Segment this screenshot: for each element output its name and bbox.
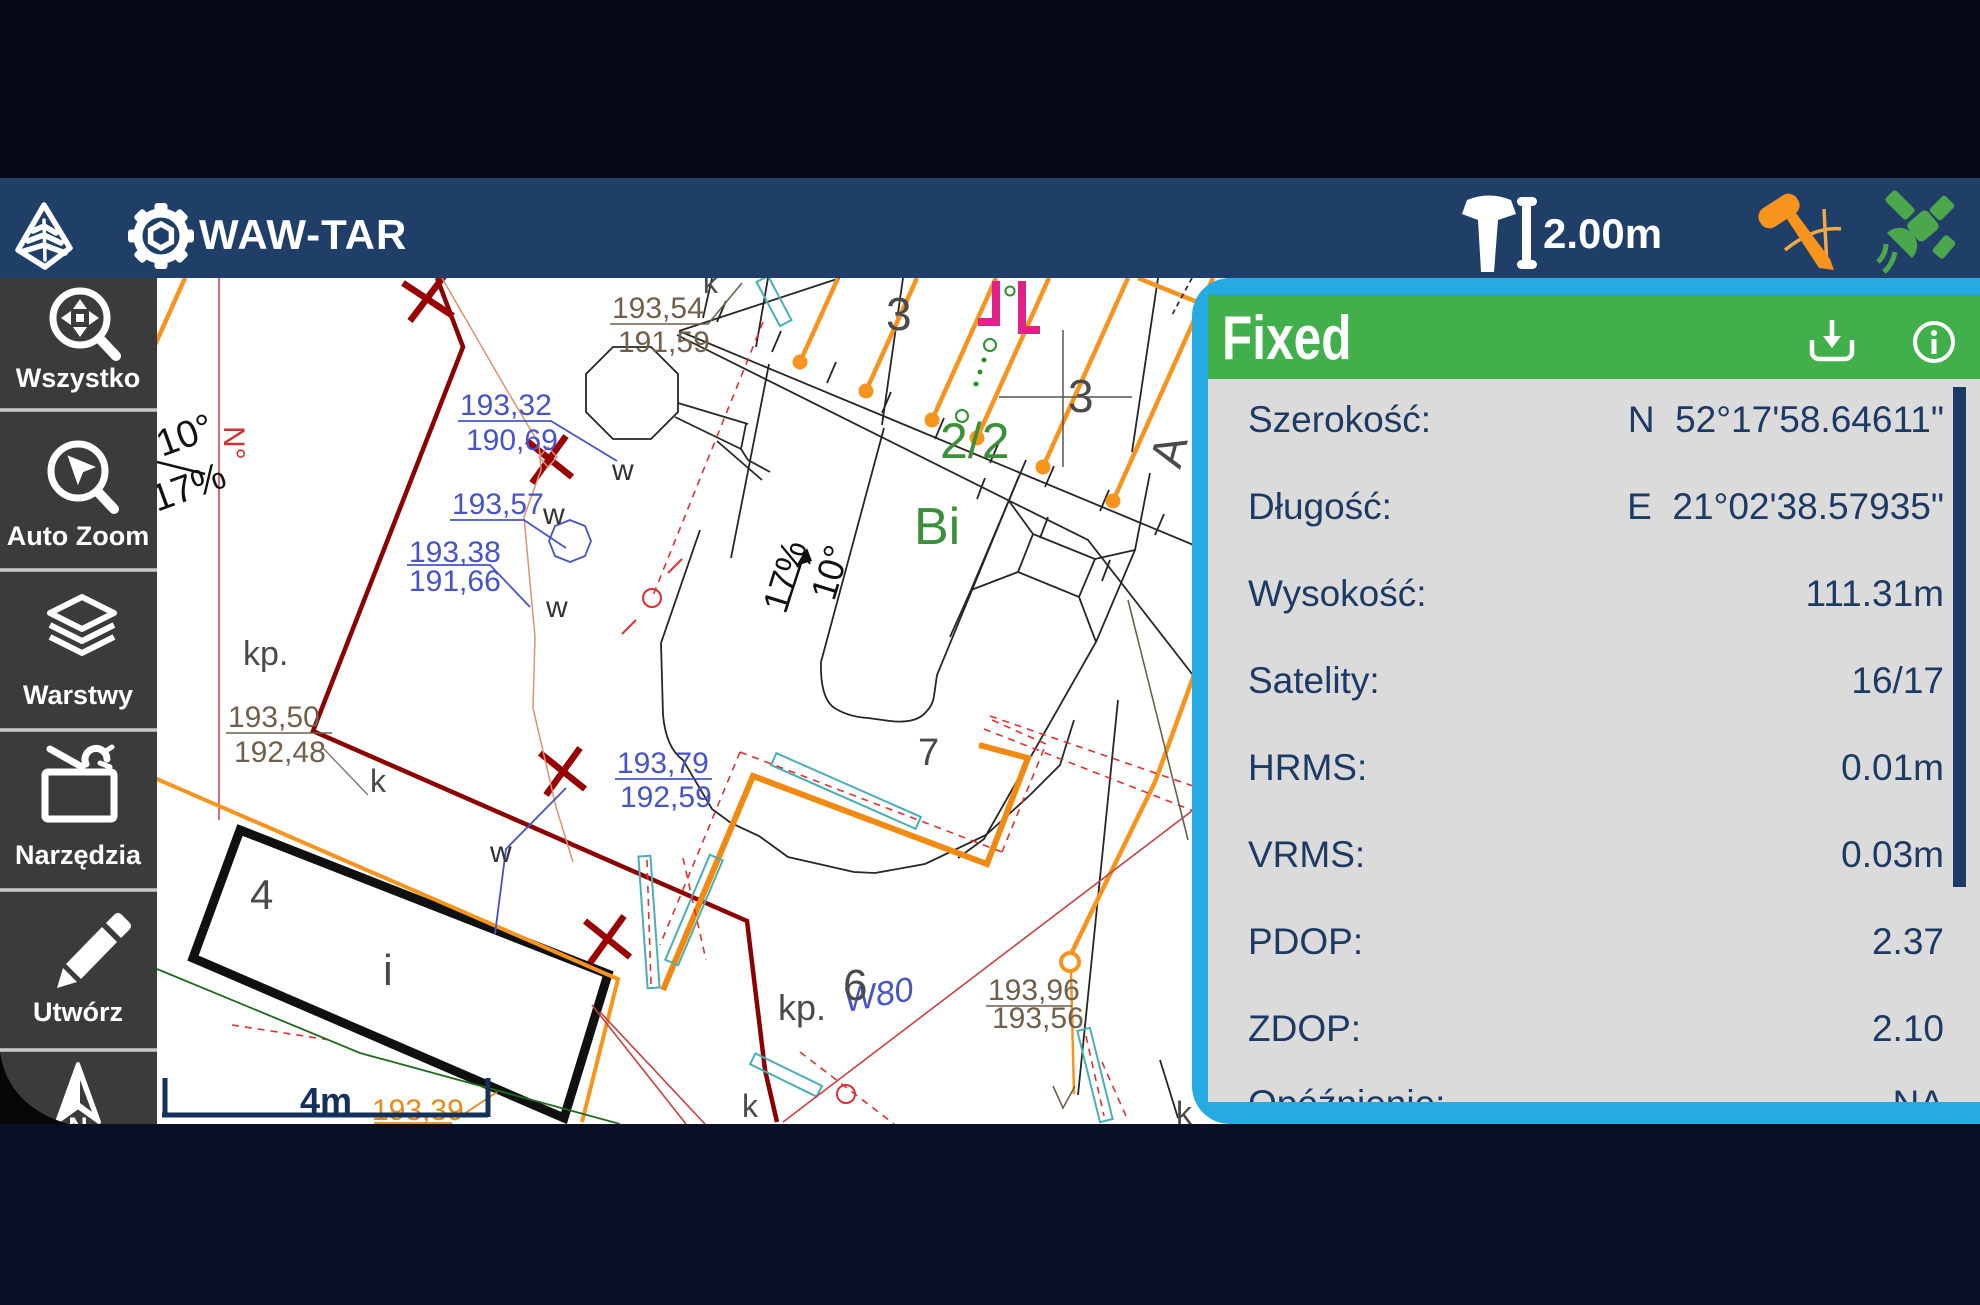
- svg-text:Utwórz: Utwórz: [33, 997, 123, 1027]
- svg-text:2.00m: 2.00m: [1543, 210, 1662, 257]
- svg-text:w: w: [611, 454, 634, 487]
- svg-text:193,50: 193,50: [228, 701, 320, 734]
- svg-text:193,56: 193,56: [992, 1002, 1084, 1035]
- svg-text:kp.: kp.: [243, 635, 288, 673]
- svg-text:Auto Zoom: Auto Zoom: [7, 521, 149, 551]
- svg-text:191,59: 191,59: [618, 326, 710, 359]
- svg-text:k: k: [370, 763, 387, 799]
- svg-text:Bi: Bi: [914, 498, 960, 556]
- svg-text:192,59: 192,59: [620, 781, 712, 814]
- svg-text:193,57: 193,57: [452, 488, 544, 521]
- svg-text:w: w: [545, 591, 568, 624]
- svg-text:191,66: 191,66: [409, 565, 501, 598]
- svg-text:190,69: 190,69: [466, 424, 558, 457]
- svg-text:6: 6: [843, 961, 867, 1010]
- svg-text:193,39: 193,39: [372, 1094, 464, 1124]
- svg-text:k: k: [742, 1088, 759, 1124]
- svg-text:k: k: [1176, 1095, 1193, 1124]
- svg-text:193,54: 193,54: [612, 292, 704, 325]
- svg-text:k: k: [703, 278, 719, 300]
- svg-text:Narzędzia: Narzędzia: [15, 840, 142, 870]
- svg-text:Warstwy: Warstwy: [23, 680, 133, 710]
- svg-text:7: 7: [918, 732, 939, 774]
- svg-text:3: 3: [1068, 370, 1094, 422]
- svg-text:2/2: 2/2: [940, 413, 1010, 469]
- svg-text:193,32: 193,32: [460, 389, 552, 422]
- svg-text:4: 4: [250, 871, 273, 918]
- svg-text:w: w: [542, 498, 565, 531]
- svg-text:kp.: kp.: [778, 987, 826, 1028]
- svg-text:w: w: [489, 836, 512, 869]
- svg-text:192,48: 192,48: [234, 736, 326, 769]
- svg-text:4m: 4m: [300, 1080, 352, 1121]
- svg-text:Wszystko: Wszystko: [16, 363, 141, 393]
- svg-text:N°: N°: [217, 426, 250, 460]
- svg-text:WAW-TAR: WAW-TAR: [199, 211, 407, 258]
- svg-text:193,79: 193,79: [617, 747, 709, 780]
- svg-text:3: 3: [886, 288, 912, 340]
- svg-text:i: i: [383, 946, 393, 995]
